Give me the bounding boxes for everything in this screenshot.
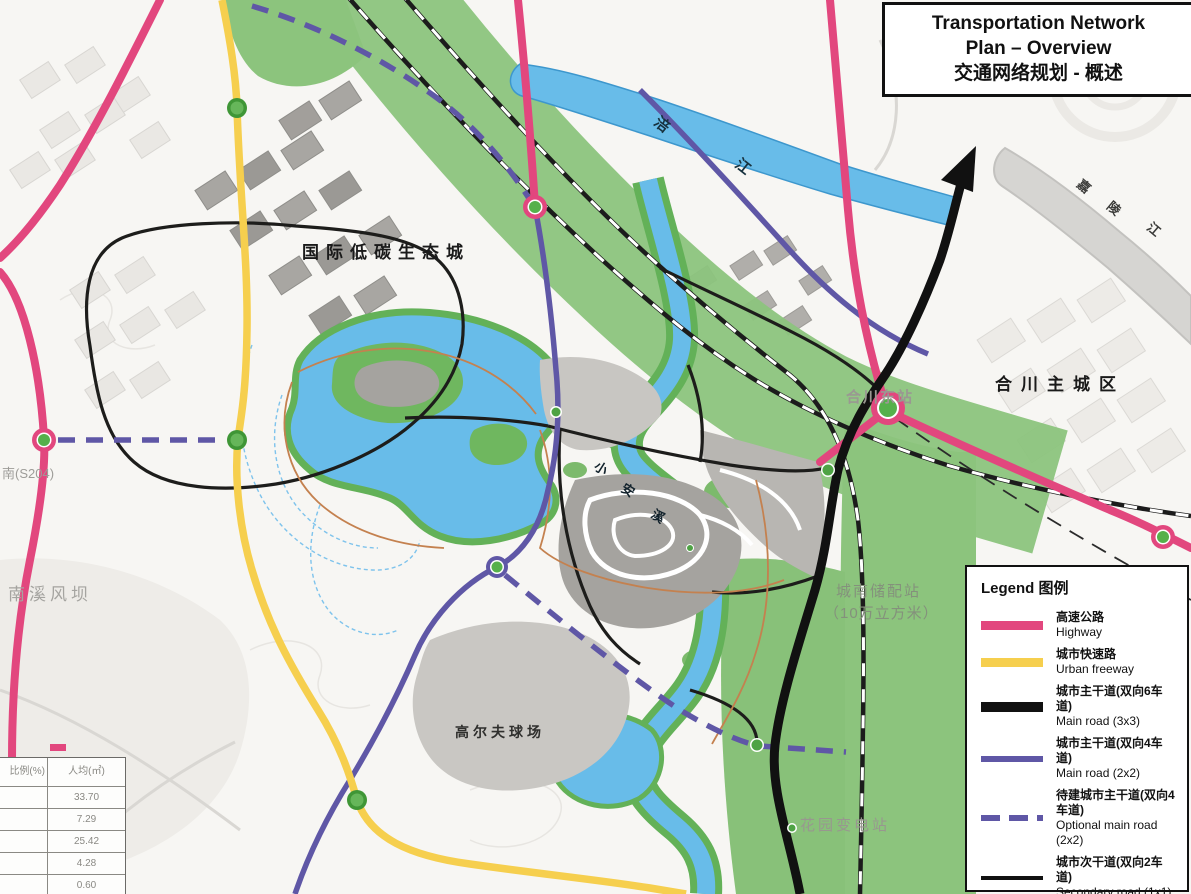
table-cell: 33.70 [48, 787, 125, 808]
hechuan-city-label: 合川主城区 [995, 374, 1125, 394]
substation-label: 花园变电站 [800, 817, 890, 834]
land-use-table: 比例(%) 人均(㎡) 33.70 7.29 25.42 4.28 0.60 [0, 757, 126, 894]
legend-zh: 城市次干道(双向2车道) [1056, 855, 1175, 885]
table-cell: 25.42 [48, 831, 125, 852]
eco-city-label: 国际低碳生态城 [302, 242, 470, 262]
highway-swatch [981, 621, 1043, 630]
title-line-3: 交通网络规划 - 概述 [887, 61, 1190, 87]
title-box: Transportation Network Plan – Overview 交… [882, 2, 1191, 97]
golf-course-label: 高尔夫球场 [455, 724, 545, 740]
title-line-2: Plan – Overview [887, 36, 1190, 61]
urban-freeway-swatch [981, 658, 1043, 667]
secondary-road-swatch [981, 876, 1043, 880]
legend-en: Main road (2x2) [1056, 766, 1175, 781]
legend-item-secondary-road: 城市次干道(双向2车道) Secondary road (1x1) [981, 855, 1175, 894]
s204-label: 南(S204) [2, 466, 54, 481]
legend-en: Urban freeway [1056, 662, 1134, 677]
storage-station-label-line1: 城南储配站 [836, 583, 921, 600]
table-row: 4.28 [0, 853, 125, 875]
legend-box: Legend 图例 高速公路 Highway 城市快速路 Urban freew… [965, 565, 1189, 892]
legend-item-urban-freeway: 城市快速路 Urban freeway [981, 647, 1175, 677]
title-line-1: Transportation Network [887, 11, 1190, 36]
legend-item-optional-main-road: 待建城市主干道(双向4车道) Optional main road (2x2) [981, 788, 1175, 848]
optional-main-road-swatch [981, 815, 1043, 821]
table-cell: 7.29 [48, 809, 125, 830]
legend-zh: 高速公路 [1056, 610, 1104, 625]
table-row: 25.42 [0, 831, 125, 853]
cropped-legend-fragment [50, 744, 66, 751]
table-header-row: 比例(%) 人均(㎡) [0, 758, 125, 787]
plan-canvas: 合川东站 国际低碳生态城 合川主城区 高尔夫球场 城南储配站 （10万立方米） … [0, 0, 1191, 894]
table-cell: 4.28 [48, 853, 125, 874]
table-row: 0.60 [0, 875, 125, 894]
storage-station-label-line2: （10万立方米） [824, 605, 939, 622]
legend-en: Optional main road (2x2) [1056, 818, 1175, 848]
main-road-3x3-swatch [981, 702, 1043, 712]
railway-station-label: 合川东站 [845, 388, 914, 406]
legend-zh: 待建城市主干道(双向4车道) [1056, 788, 1175, 818]
legend-zh: 城市主干道(双向4车道) [1056, 736, 1175, 766]
legend-en: Secondary road (1x1) [1056, 885, 1175, 894]
legend-zh: 城市主干道(双向6车道) [1056, 684, 1175, 714]
table-header-ratio: 比例(%) [0, 758, 48, 786]
legend-heading: Legend 图例 [981, 577, 1175, 598]
legend-en: Main road (3x3) [1056, 714, 1175, 729]
table-row: 7.29 [0, 809, 125, 831]
main-road-2x2-swatch [981, 756, 1043, 762]
nanxi-weir-label: 南溪风坝 [8, 585, 92, 604]
legend-zh: 城市快速路 [1056, 647, 1134, 662]
legend-item-main-road-2x2: 城市主干道(双向4车道) Main road (2x2) [981, 736, 1175, 781]
table-row: 33.70 [0, 787, 125, 809]
table-header-per-capita: 人均(㎡) [48, 758, 125, 786]
legend-en: Highway [1056, 625, 1104, 640]
legend-item-main-road-3x3: 城市主干道(双向6车道) Main road (3x3) [981, 684, 1175, 729]
legend-item-highway: 高速公路 Highway [981, 610, 1175, 640]
table-cell: 0.60 [48, 875, 125, 894]
